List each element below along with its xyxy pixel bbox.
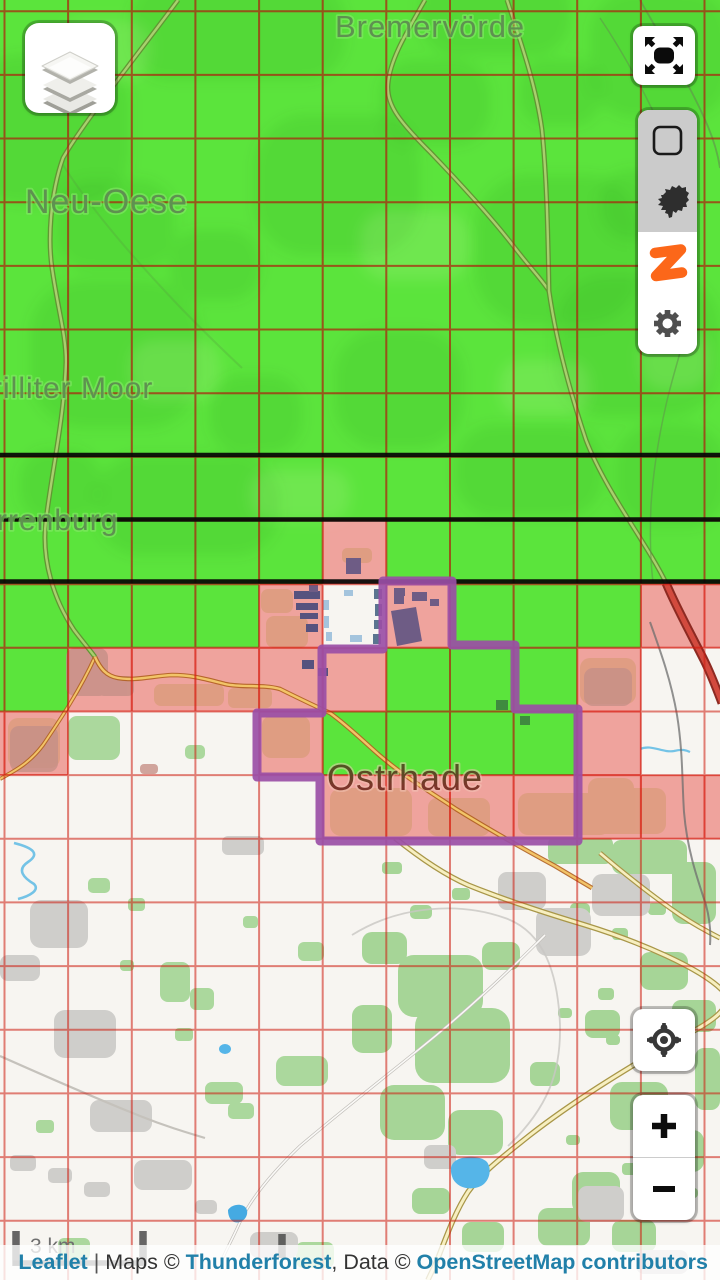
- svg-text:Ostrhade: Ostrhade: [327, 757, 483, 798]
- svg-text:Bremervörde: Bremervörde: [335, 9, 525, 44]
